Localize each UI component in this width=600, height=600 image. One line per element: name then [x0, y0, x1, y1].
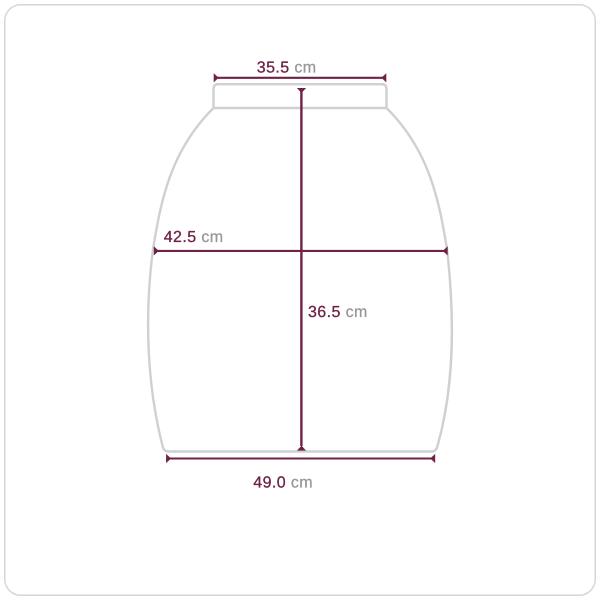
svg-text:35.5 cm: 35.5 cm [257, 60, 317, 77]
svg-text:42.5 cm: 42.5 cm [164, 229, 224, 246]
svg-text:36.5 cm: 36.5 cm [308, 304, 368, 321]
svg-text:49.0 cm: 49.0 cm [253, 475, 313, 492]
